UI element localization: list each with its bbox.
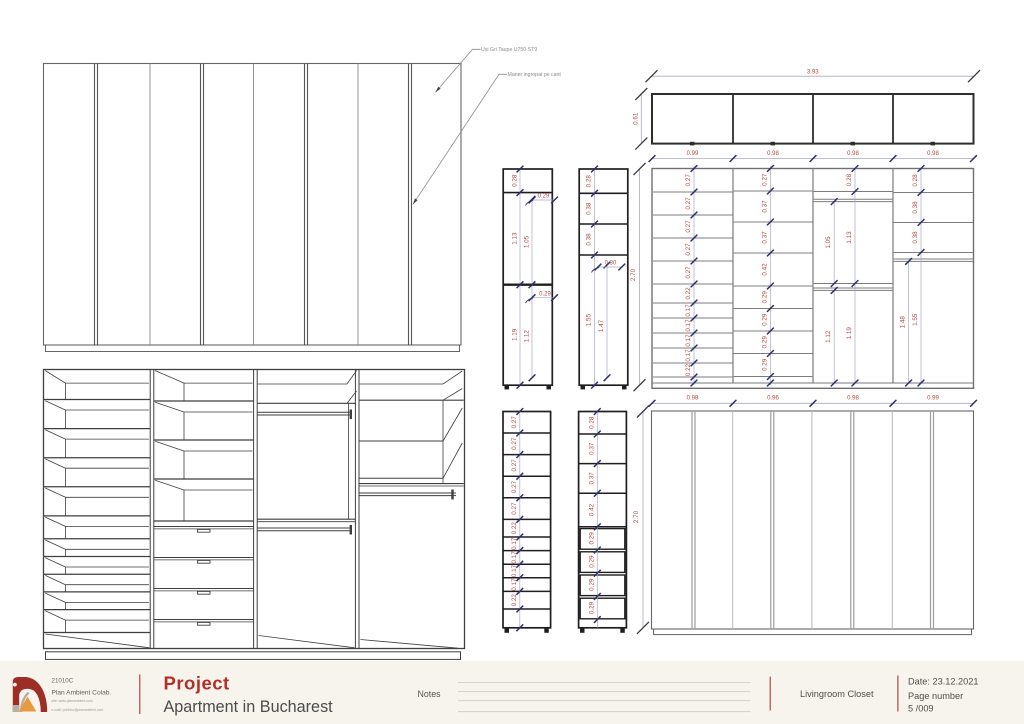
svg-text:0.38: 0.38 [586, 233, 593, 246]
svg-text:Notes: Notes [418, 689, 442, 699]
svg-text:1.05: 1.05 [825, 236, 832, 249]
svg-text:0.98: 0.98 [847, 151, 859, 157]
svg-text:0.29: 0.29 [761, 336, 768, 349]
svg-text:0.29: 0.29 [761, 291, 768, 304]
svg-text:0.27: 0.27 [511, 502, 518, 515]
svg-text:1.05: 1.05 [523, 235, 530, 248]
svg-text:0.29: 0.29 [589, 578, 596, 591]
svg-text:0.17: 0.17 [685, 304, 692, 317]
svg-text:0.22: 0.22 [511, 594, 518, 607]
svg-text:0.98: 0.98 [767, 151, 779, 157]
svg-text:0.38: 0.38 [586, 202, 593, 215]
svg-text:0.27: 0.27 [511, 437, 518, 450]
svg-text:0.28: 0.28 [589, 416, 596, 429]
svg-text:0.37: 0.37 [761, 200, 768, 213]
svg-text:0.17: 0.17 [685, 349, 692, 362]
svg-text:0.17: 0.17 [685, 319, 692, 332]
svg-text:0.27: 0.27 [685, 174, 692, 187]
svg-text:0.38: 0.38 [912, 201, 919, 214]
svg-text:0.27: 0.27 [511, 480, 518, 493]
svg-text:0.28: 0.28 [511, 174, 518, 187]
svg-text:e-mail: portbiro@planambient.c: e-mail: portbiro@planambient.com [52, 708, 104, 712]
svg-text:site: www.planambient.com: site: www.planambient.com [52, 699, 93, 703]
svg-text:Apartment in Bucharest: Apartment in Bucharest [164, 698, 334, 716]
svg-text:0.29: 0.29 [589, 555, 596, 568]
svg-text:0.27: 0.27 [511, 459, 518, 472]
svg-text:21010C: 21010C [52, 678, 74, 685]
svg-text:0.29: 0.29 [761, 313, 768, 326]
svg-text:0.17: 0.17 [511, 564, 518, 577]
svg-text:0.98: 0.98 [687, 396, 699, 402]
svg-text:1.47: 1.47 [598, 319, 605, 332]
svg-text:0.28: 0.28 [586, 175, 593, 188]
svg-text:0.98: 0.98 [927, 151, 939, 157]
svg-text:1.13: 1.13 [846, 231, 853, 244]
svg-text:0.37: 0.37 [589, 472, 596, 485]
svg-text:Page number: Page number [908, 691, 963, 701]
svg-text:0.37: 0.37 [589, 442, 596, 455]
svg-text:2.70: 2.70 [633, 510, 640, 523]
svg-text:0.29: 0.29 [538, 194, 550, 200]
svg-text:0.27: 0.27 [685, 266, 692, 279]
svg-text:0.99: 0.99 [927, 396, 939, 402]
svg-text:Project: Project [164, 673, 230, 694]
svg-text:Date: 23.12.2021: Date: 23.12.2021 [908, 676, 979, 686]
svg-text:1.48: 1.48 [899, 316, 906, 329]
svg-text:0.17: 0.17 [685, 334, 692, 347]
svg-text:Livingroom Closet: Livingroom Closet [800, 689, 874, 699]
svg-text:0.61: 0.61 [633, 112, 640, 125]
svg-text:0.29: 0.29 [589, 601, 596, 614]
svg-text:0.27: 0.27 [511, 416, 518, 429]
svg-text:0.42: 0.42 [761, 263, 768, 276]
svg-text:1.19: 1.19 [511, 328, 518, 341]
svg-text:3.93: 3.93 [807, 69, 819, 75]
svg-text:0.27: 0.27 [761, 173, 768, 186]
svg-text:0.99: 0.99 [687, 151, 699, 157]
svg-text:0.27: 0.27 [685, 197, 692, 210]
svg-text:0.17: 0.17 [511, 578, 518, 591]
svg-text:0.17: 0.17 [511, 537, 518, 550]
svg-text:1.12: 1.12 [825, 330, 832, 343]
svg-text:0.27: 0.27 [685, 220, 692, 233]
svg-text:Plan Ambient Colab.: Plan Ambient Colab. [52, 690, 112, 697]
svg-text:2.70: 2.70 [630, 268, 637, 281]
svg-text:0.98: 0.98 [847, 396, 859, 402]
svg-text:0.22: 0.22 [685, 287, 692, 300]
svg-text:0.96: 0.96 [767, 396, 779, 402]
svg-text:0.37: 0.37 [761, 231, 768, 244]
svg-text:0.28: 0.28 [846, 173, 853, 186]
svg-text:1.12: 1.12 [523, 330, 530, 343]
svg-text:1.13: 1.13 [511, 232, 518, 245]
svg-text:5 /009: 5 /009 [908, 704, 934, 714]
svg-text:0.29: 0.29 [589, 532, 596, 545]
svg-text:1.55: 1.55 [586, 313, 593, 326]
svg-text:0.22: 0.22 [685, 363, 692, 376]
svg-text:1.19: 1.19 [846, 327, 853, 340]
svg-text:0.29: 0.29 [539, 291, 551, 297]
svg-text:Usi Gri Taupe U750 ST9: Usi Gri Taupe U750 ST9 [481, 47, 537, 53]
svg-text:0.30: 0.30 [605, 261, 617, 267]
svg-text:0.42: 0.42 [589, 503, 596, 516]
svg-text:0.38: 0.38 [912, 231, 919, 244]
svg-text:0.27: 0.27 [685, 243, 692, 256]
svg-text:Maner ingropat pe cant: Maner ingropat pe cant [508, 72, 562, 78]
svg-text:0.29: 0.29 [761, 358, 768, 371]
svg-text:0.17: 0.17 [511, 551, 518, 564]
svg-text:1.55: 1.55 [912, 313, 919, 326]
svg-text:0.28: 0.28 [912, 174, 919, 187]
svg-text:0.22: 0.22 [511, 522, 518, 535]
